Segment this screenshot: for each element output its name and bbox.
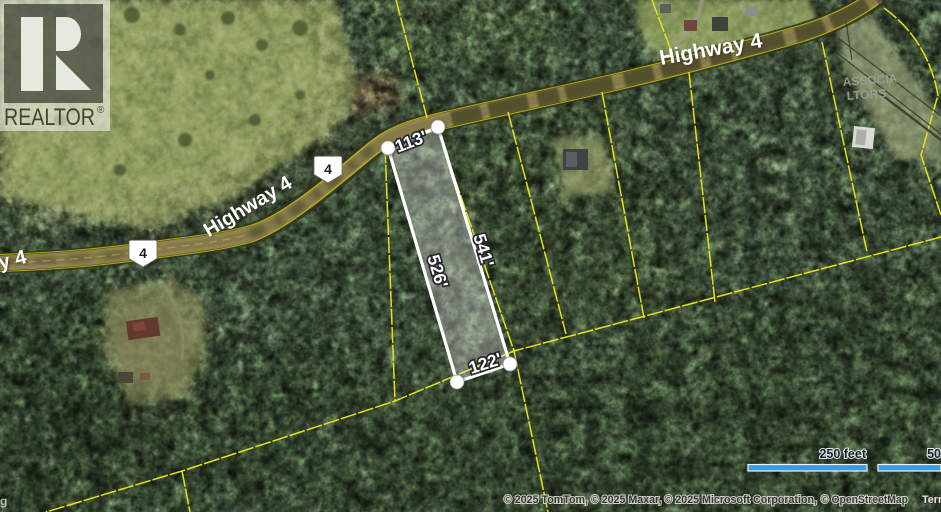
svg-text:© OpenStreetMap: © OpenStreetMap <box>821 494 908 506</box>
svg-text:© 2025 TomTom, © 2025 Maxar, ©: © 2025 TomTom, © 2025 Maxar, © 2025 Micr… <box>504 494 817 506</box>
svg-text:Terr: Terr <box>922 494 941 506</box>
svg-text:250 feet: 250 feet <box>819 447 866 461</box>
svg-text:4: 4 <box>139 245 147 261</box>
svg-text:4: 4 <box>324 161 332 177</box>
svg-text:REALTOR: REALTOR <box>4 104 95 131</box>
svg-text:50: 50 <box>927 447 941 461</box>
svg-text:g: g <box>0 494 7 508</box>
svg-text:LTORS: LTORS <box>846 86 886 103</box>
svg-text:®: ® <box>97 105 105 116</box>
